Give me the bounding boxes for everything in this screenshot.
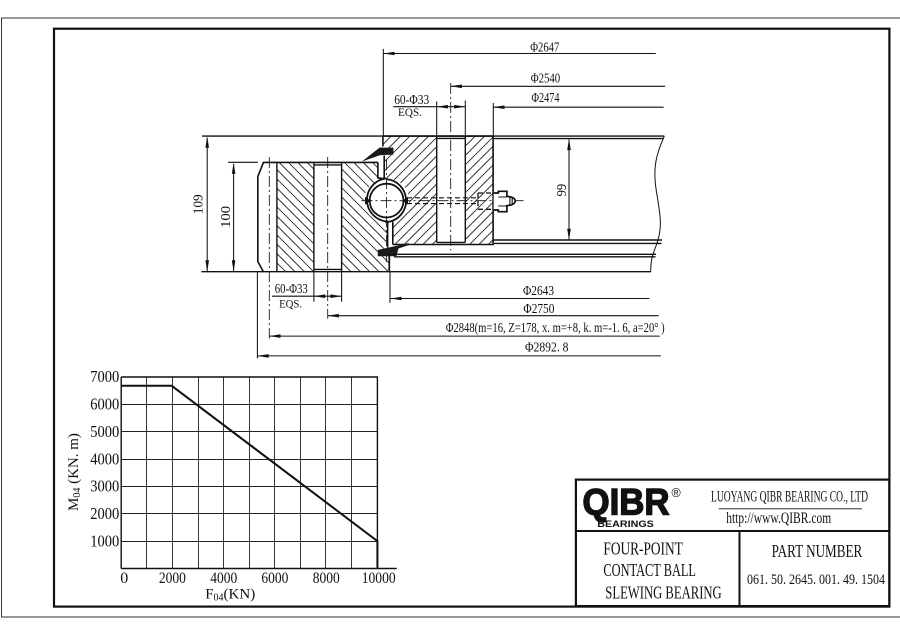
svg-text:FOUR-POINT: FOUR-POINT — [603, 538, 682, 558]
svg-text:Φ2474: Φ2474 — [532, 91, 560, 106]
svg-text:EQS.: EQS. — [279, 297, 302, 311]
svg-text:CONTACT BALL: CONTACT BALL — [603, 560, 696, 580]
svg-text:5000: 5000 — [90, 422, 119, 441]
svg-text:4000: 4000 — [90, 449, 119, 468]
svg-text:F04(KN): F04(KN) — [205, 587, 255, 604]
svg-text:Φ2750: Φ2750 — [523, 302, 554, 317]
svg-text:®: ® — [672, 486, 682, 500]
svg-text:061. 50. 2645. 001. 49. 1504: 061. 50. 2645. 001. 49. 1504 — [747, 572, 885, 588]
svg-text:SLEWING BEARING: SLEWING BEARING — [605, 582, 721, 602]
svg-text:QIBR: QIBR — [583, 482, 670, 523]
svg-text:3000: 3000 — [90, 477, 119, 496]
svg-text:100: 100 — [219, 206, 234, 228]
svg-text:M04 (KN. m): M04 (KN. m) — [66, 433, 83, 511]
svg-text:http://www.QIBR.com: http://www.QIBR.com — [726, 510, 831, 527]
svg-text:2000: 2000 — [90, 504, 119, 523]
svg-text:60-Φ33: 60-Φ33 — [275, 282, 308, 297]
svg-text:Φ2540: Φ2540 — [531, 72, 561, 87]
svg-text:PART NUMBER: PART NUMBER — [772, 541, 863, 561]
svg-text:8000: 8000 — [313, 570, 340, 587]
svg-text:6000: 6000 — [261, 570, 288, 587]
svg-text:BEARINGS: BEARINGS — [597, 519, 654, 530]
svg-text:99: 99 — [555, 184, 570, 197]
svg-text:Φ2892. 8: Φ2892. 8 — [525, 341, 569, 356]
svg-text:4000: 4000 — [210, 570, 237, 587]
svg-text:0: 0 — [120, 570, 128, 587]
svg-text:10000: 10000 — [362, 570, 396, 587]
svg-text:Φ2647: Φ2647 — [530, 41, 559, 56]
svg-text:7000: 7000 — [90, 367, 119, 386]
svg-text:6000: 6000 — [90, 395, 119, 414]
svg-text:109: 109 — [192, 194, 207, 214]
svg-text:1000: 1000 — [90, 531, 119, 550]
svg-text:LUOYANG QIBR BEARING CO., LTD: LUOYANG QIBR BEARING CO., LTD — [711, 489, 868, 506]
svg-text:Φ2848(m=16, Z=178, x. m=+8, k.: Φ2848(m=16, Z=178, x. m=+8, k. m=-1. 6, … — [446, 320, 665, 335]
svg-text:2000: 2000 — [159, 570, 186, 587]
svg-text:EQS.: EQS. — [398, 105, 422, 119]
svg-text:Φ2643: Φ2643 — [523, 284, 554, 299]
